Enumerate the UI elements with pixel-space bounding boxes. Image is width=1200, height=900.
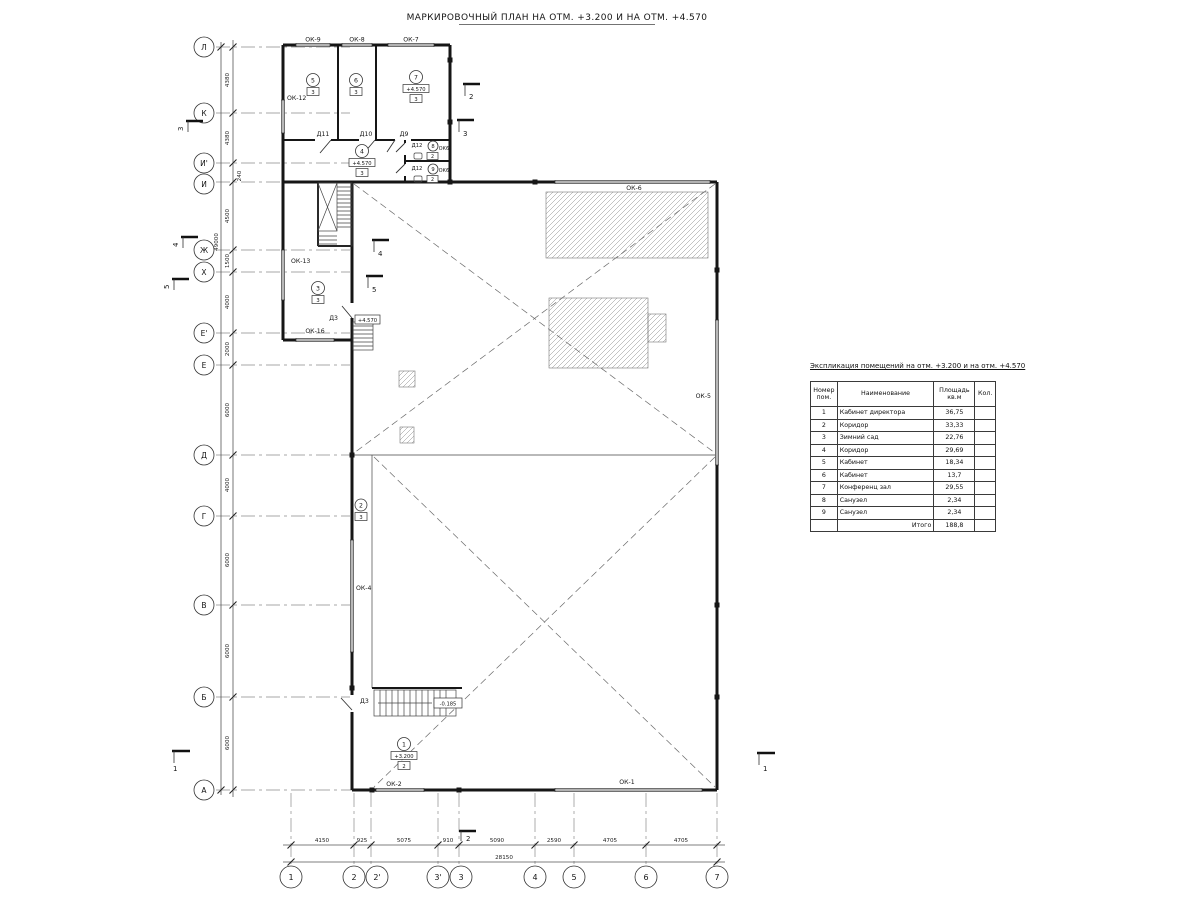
table-row: 8Санузел2,34 bbox=[811, 494, 996, 507]
dim-left-3: 4500 bbox=[225, 208, 231, 223]
room-number: 9 bbox=[431, 167, 434, 173]
hatched-areas bbox=[399, 192, 708, 443]
axis-label: Ж bbox=[200, 246, 208, 255]
room-number: 4 bbox=[360, 148, 364, 155]
room-floor-type: 3 bbox=[354, 90, 357, 96]
axis-label: В bbox=[201, 601, 206, 610]
axis-label: 3' bbox=[434, 873, 441, 882]
room-floor-type: 3 bbox=[316, 298, 319, 304]
void-diagonals bbox=[352, 184, 717, 787]
window-symbols bbox=[281, 43, 718, 791]
left-dimension-chain: 4380 4380 240 4500 1500 4000 2000 6000 4… bbox=[214, 40, 243, 797]
axis-label: 4 bbox=[532, 873, 537, 882]
dim-bottom-6: 4705 bbox=[603, 838, 618, 844]
axis-label: Х bbox=[201, 268, 206, 277]
axis-label: Д bbox=[201, 451, 207, 460]
dim-left-1: 4380 bbox=[225, 130, 231, 145]
col-header-number: Номерпом. bbox=[811, 382, 838, 407]
room-floor-type: 3 bbox=[311, 90, 314, 96]
dim-left-10: 6000 bbox=[225, 643, 231, 658]
table-row: 4Коридор29,69 bbox=[811, 444, 996, 457]
dim-left-8: 4000 bbox=[225, 477, 231, 492]
room-number: 1 bbox=[402, 741, 406, 748]
window-mark-ok16: ОК-16 bbox=[305, 328, 324, 335]
table-row: 7Конференц зал29,55 bbox=[811, 482, 996, 495]
axis-label: Б bbox=[201, 693, 206, 702]
axis-label: 7 bbox=[714, 873, 719, 882]
section-mark: 3 bbox=[177, 127, 185, 131]
table-row: 1Кабинет директора36,75 bbox=[811, 407, 996, 420]
window-mark-ok12: ОК-12 bbox=[287, 95, 306, 102]
section-mark: 1 bbox=[173, 765, 177, 773]
axis-label: Г bbox=[202, 512, 207, 521]
window-mark-ok1: ОК-1 bbox=[619, 779, 634, 786]
total-value: 188,8 bbox=[934, 519, 975, 532]
door-mark-d3a: Д3 bbox=[329, 315, 338, 322]
table-title: Экспликация помещений на отм. +3.200 и н… bbox=[810, 362, 996, 370]
door-mark-d10: Д10 bbox=[360, 131, 373, 138]
col-header-qty: Кол. bbox=[975, 382, 996, 407]
door-mark-d12a: Д12 bbox=[412, 143, 423, 149]
table-total-row: Итого 188,8 bbox=[811, 519, 996, 532]
door-mark-d12b: Д12 bbox=[412, 166, 423, 172]
section-mark: 1 bbox=[763, 765, 767, 773]
axis-lines bbox=[216, 47, 717, 864]
window-mark-ok4: ОК-4 bbox=[356, 585, 371, 592]
dim-bottom-0: 4150 bbox=[315, 838, 330, 844]
dim-left-0: 4380 bbox=[225, 72, 231, 87]
door-mark-d9: Д9 bbox=[400, 131, 409, 138]
left-dim-ticks bbox=[218, 44, 237, 794]
col-header-area: Площадькв.м bbox=[934, 382, 975, 407]
room-floor-type: 3 bbox=[414, 97, 417, 103]
window-mark-ok9: ОК-9 bbox=[305, 37, 320, 44]
window-mark-ok6b: ОК6 bbox=[439, 168, 449, 174]
dim-left-7: 6000 bbox=[225, 402, 231, 417]
room-floor-type: 3 bbox=[360, 171, 363, 177]
room-number: 5 bbox=[311, 77, 315, 84]
dim-left-6: 2000 bbox=[225, 341, 231, 356]
room-floor-type: 2 bbox=[431, 177, 434, 183]
section-mark: 4 bbox=[172, 242, 180, 247]
window-mark-ok7: ОК-7 bbox=[403, 37, 418, 44]
room-specification-table: Экспликация помещений на отм. +3.200 и н… bbox=[810, 362, 996, 532]
table-row: 2Коридор33,33 bbox=[811, 419, 996, 432]
room-floor-type: 2 bbox=[431, 154, 434, 160]
floor-plan-drawing: МАРКИРОВОЧНЫЙ ПЛАН НА ОТМ. +3.200 И НА О… bbox=[0, 0, 1200, 900]
section-mark: 5 bbox=[372, 286, 376, 294]
axis-label: 3 bbox=[458, 873, 463, 882]
table-row: 6Кабинет13,7 bbox=[811, 469, 996, 482]
col-header-name: Наименование bbox=[837, 382, 934, 407]
section-mark: 2 bbox=[466, 835, 470, 843]
room-number: 6 bbox=[354, 77, 358, 84]
room-number: 3 bbox=[316, 285, 320, 292]
spec-table: Номерпом. Наименование Площадькв.м Кол. … bbox=[810, 381, 996, 532]
dim-bottom-5: 2590 bbox=[547, 838, 562, 844]
dim-bottom-7: 4705 bbox=[674, 838, 689, 844]
dim-left-2: 240 bbox=[237, 170, 243, 181]
axis-label: 5 bbox=[571, 873, 576, 882]
stair-upper bbox=[318, 183, 352, 246]
door-mark-d3b: Д3 bbox=[360, 698, 369, 705]
table-row: 3Зимний сад22,76 bbox=[811, 432, 996, 445]
column-markers bbox=[350, 58, 720, 793]
dim-left-11: 6000 bbox=[225, 735, 231, 750]
window-mark-ok2: ОК-2 bbox=[386, 781, 401, 788]
door-mark-d11: Д11 bbox=[317, 131, 330, 138]
dim-left-9: 6000 bbox=[225, 552, 231, 567]
elevation-stair-up: +4.570 bbox=[358, 318, 377, 324]
room-number: 8 bbox=[431, 144, 434, 150]
window-mark-ok6: ОК-6 bbox=[626, 185, 641, 192]
window-mark-ok6a: ОК6 bbox=[439, 146, 449, 152]
room-elevation: +4.570 bbox=[352, 161, 371, 167]
room-floor-type: 2 bbox=[402, 764, 405, 770]
table-row: 9Санузел2,34 bbox=[811, 507, 996, 520]
section-mark: 5 bbox=[163, 285, 171, 289]
axis-label: К bbox=[201, 109, 207, 118]
stair-mid bbox=[353, 322, 373, 350]
axis-label: 2 bbox=[351, 873, 356, 882]
room-elevation: +4.570 bbox=[406, 87, 425, 93]
total-label: Итого bbox=[837, 519, 934, 532]
axis-bubbles-left: Л К И' И Ж Х Е' Е Д Г В Б А bbox=[194, 37, 214, 800]
axis-label: 2' bbox=[373, 873, 380, 882]
bottom-dimension-chain: 4150 925 5075 910 5090 2590 4705 4705 28… bbox=[283, 838, 725, 866]
section-mark: 2 bbox=[469, 93, 473, 101]
sheet-title: МАРКИРОВОЧНЫЙ ПЛАН НА ОТМ. +3.200 И НА О… bbox=[407, 11, 708, 25]
axis-label: Л bbox=[201, 43, 207, 52]
axis-label: 1 bbox=[288, 873, 293, 882]
dim-bottom-3: 910 bbox=[443, 838, 454, 844]
window-mark-ok5: ОК-5 bbox=[696, 393, 711, 400]
blueprint-page: МАРКИРОВОЧНЫЙ ПЛАН НА ОТМ. +3.200 И НА О… bbox=[0, 0, 1200, 900]
section-mark: 3 bbox=[463, 130, 467, 138]
door-symbols bbox=[320, 140, 405, 710]
room-number: 7 bbox=[414, 74, 418, 81]
axis-label: Е' bbox=[201, 329, 208, 338]
axis-label: 6 bbox=[643, 873, 648, 882]
window-mark-ok13: ОК-13 bbox=[291, 258, 310, 265]
dim-left-4: 1500 bbox=[225, 253, 231, 268]
room-elevation: +3.200 bbox=[394, 754, 413, 760]
dim-bottom-4: 5090 bbox=[490, 838, 505, 844]
dim-left-5: 4000 bbox=[225, 294, 231, 309]
page-title: МАРКИРОВОЧНЫЙ ПЛАН НА ОТМ. +3.200 И НА О… bbox=[407, 11, 708, 23]
dim-bottom-1: 925 bbox=[357, 838, 368, 844]
dim-left-total: 49000 bbox=[214, 233, 220, 251]
table-row: 5Кабинет18,34 bbox=[811, 457, 996, 470]
axis-label: А bbox=[201, 786, 207, 795]
dim-bottom-total: 28150 bbox=[495, 855, 513, 861]
room-number: 2 bbox=[359, 502, 363, 509]
window-mark-ok8: ОК-8 bbox=[349, 37, 364, 44]
elevation-stair-low: -0.185 bbox=[440, 702, 457, 708]
axis-label: Е bbox=[202, 361, 207, 370]
dim-bottom-2: 5075 bbox=[397, 838, 412, 844]
walls bbox=[283, 45, 720, 793]
room-floor-type: 3 bbox=[359, 515, 362, 521]
table-header-row: Номерпом. Наименование Площадькв.м Кол. bbox=[811, 382, 996, 407]
axis-label: И bbox=[201, 180, 207, 189]
section-mark: 4 bbox=[378, 250, 383, 258]
axis-bubbles-bottom: 1 2 2' 3' 3 4 5 6 7 bbox=[280, 866, 728, 888]
axis-label: И' bbox=[200, 159, 208, 168]
